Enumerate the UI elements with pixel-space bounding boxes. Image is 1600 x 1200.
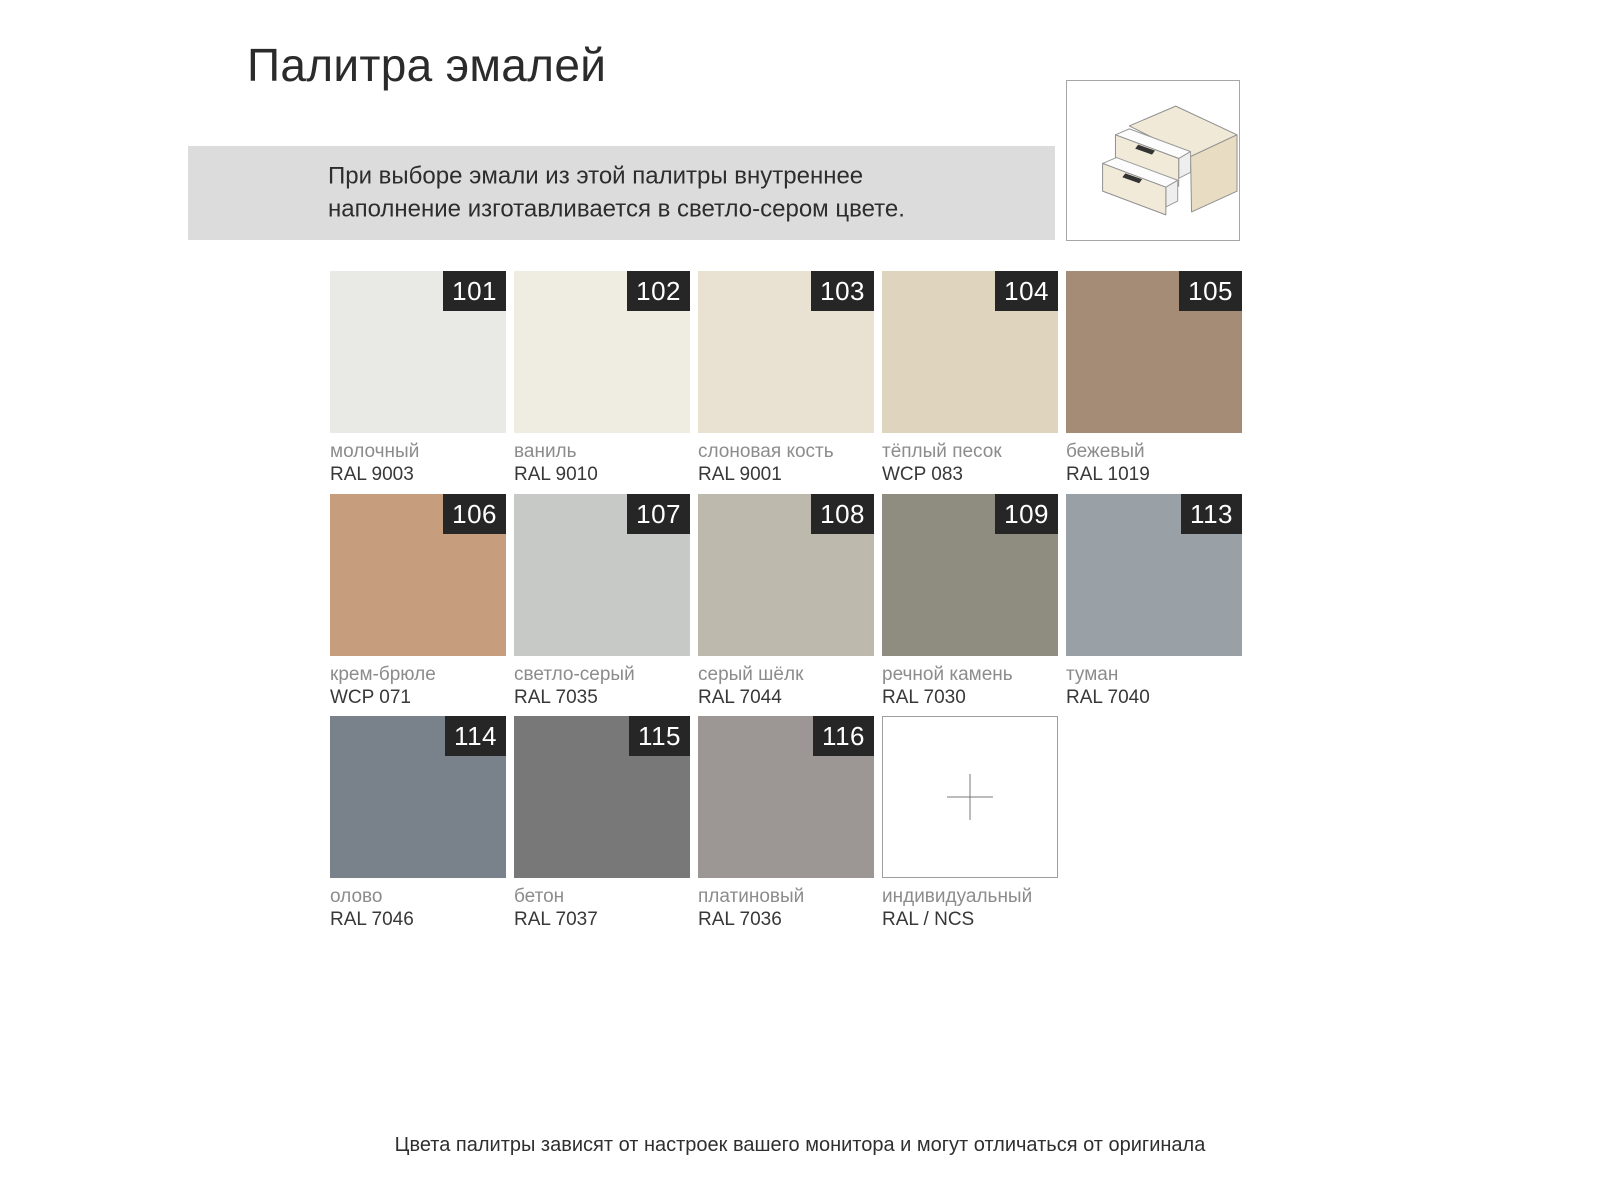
- swatch-name: серый шёлк: [698, 664, 874, 686]
- two-drawer-cabinet-icon: [1067, 81, 1239, 240]
- footer-disclaimer: Цвета палитры зависят от настроек вашего…: [0, 1134, 1600, 1157]
- swatch-code: RAL 7035: [514, 686, 690, 711]
- swatch-number-badge: 102: [627, 271, 690, 311]
- swatch-cell: 113 туман RAL 7040: [1066, 494, 1242, 711]
- page: Палитра эмалей При выборе эмали из этой …: [0, 0, 1600, 1200]
- swatch-name: крем-брюле: [330, 664, 506, 686]
- swatch-name: молочный: [330, 441, 506, 463]
- color-swatch[interactable]: 116: [698, 716, 874, 878]
- swatch-code: RAL 7040: [1066, 686, 1242, 711]
- swatch-number-badge: 108: [811, 494, 874, 534]
- swatch-name: бетон: [514, 886, 690, 908]
- swatch-cell: 108 серый шёлк RAL 7044: [698, 494, 874, 711]
- note-text: При выборе эмали из этой палитры внутрен…: [328, 160, 928, 225]
- swatch-code: RAL 9010: [514, 463, 690, 488]
- color-swatch[interactable]: 109: [882, 494, 1058, 656]
- color-swatch[interactable]: 103: [698, 271, 874, 433]
- swatch-code: RAL 7046: [330, 908, 506, 933]
- swatch-cell: 102 ваниль RAL 9010: [514, 271, 690, 488]
- note-banner: При выборе эмали из этой палитры внутрен…: [188, 146, 1055, 240]
- swatch-number-badge: 104: [995, 271, 1058, 311]
- swatch-cell: 105 бежевый RAL 1019: [1066, 271, 1242, 488]
- swatch-code: WCP 083: [882, 463, 1058, 488]
- swatch-code: RAL 7044: [698, 686, 874, 711]
- drawer-illustration-frame: [1066, 80, 1240, 241]
- swatch-cell: 114 олово RAL 7046: [330, 716, 506, 933]
- plus-icon: [946, 773, 994, 821]
- page-title: Палитра эмалей: [247, 38, 606, 92]
- swatch-name: туман: [1066, 664, 1242, 686]
- swatch-name: светло-серый: [514, 664, 690, 686]
- color-swatch[interactable]: 106: [330, 494, 506, 656]
- swatch-code: RAL 9001: [698, 463, 874, 488]
- color-swatch[interactable]: 107: [514, 494, 690, 656]
- swatch-number-badge: 116: [813, 716, 874, 756]
- swatch-code: RAL 7036: [698, 908, 874, 933]
- swatch-name: слоновая кость: [698, 441, 874, 463]
- swatch-code: RAL 9003: [330, 463, 506, 488]
- color-swatch[interactable]: 115: [514, 716, 690, 878]
- swatch-name: бежевый: [1066, 441, 1242, 463]
- swatch-number-badge: 107: [627, 494, 690, 534]
- swatch-cell: 103 слоновая кость RAL 9001: [698, 271, 874, 488]
- swatch-number-badge: 109: [995, 494, 1058, 534]
- swatch-number-badge: 106: [443, 494, 506, 534]
- swatch-grid: 101 молочный RAL 9003 102 ваниль RAL 901…: [330, 271, 1246, 933]
- swatch-name: платиновый: [698, 886, 874, 908]
- color-swatch[interactable]: 104: [882, 271, 1058, 433]
- color-swatch[interactable]: 101: [330, 271, 506, 433]
- swatch-cell: 107 светло-серый RAL 7035: [514, 494, 690, 711]
- swatch-cell: 116 платиновый RAL 7036: [698, 716, 874, 933]
- swatch-number-badge: 113: [1181, 494, 1242, 534]
- swatch-cell: индивидуальный RAL / NCS: [882, 716, 1058, 933]
- swatch-number-badge: 114: [445, 716, 506, 756]
- swatch-number-badge: 105: [1179, 271, 1242, 311]
- swatch-number-badge: 101: [443, 271, 506, 311]
- color-swatch[interactable]: 105: [1066, 271, 1242, 433]
- swatch-name: тёплый песок: [882, 441, 1058, 463]
- swatch-number-badge: 103: [811, 271, 874, 311]
- swatch-cell: 115 бетон RAL 7037: [514, 716, 690, 933]
- swatch-code: RAL 7037: [514, 908, 690, 933]
- swatch-cell: 109 речной камень RAL 7030: [882, 494, 1058, 711]
- swatch-cell: 101 молочный RAL 9003: [330, 271, 506, 488]
- swatch-number-badge: 115: [629, 716, 690, 756]
- swatch-name: ваниль: [514, 441, 690, 463]
- swatch-code: RAL / NCS: [882, 908, 1058, 933]
- color-swatch[interactable]: 114: [330, 716, 506, 878]
- swatch-cell: 104 тёплый песок WCP 083: [882, 271, 1058, 488]
- color-swatch[interactable]: [882, 716, 1058, 878]
- color-swatch[interactable]: 108: [698, 494, 874, 656]
- color-swatch[interactable]: 102: [514, 271, 690, 433]
- swatch-cell: 106 крем-брюле WCP 071: [330, 494, 506, 711]
- swatch-code: RAL 7030: [882, 686, 1058, 711]
- swatch-code: WCP 071: [330, 686, 506, 711]
- swatch-name: речной камень: [882, 664, 1058, 686]
- swatch-code: RAL 1019: [1066, 463, 1242, 488]
- swatch-name: индивидуальный: [882, 886, 1058, 908]
- color-swatch[interactable]: 113: [1066, 494, 1242, 656]
- swatch-name: олово: [330, 886, 506, 908]
